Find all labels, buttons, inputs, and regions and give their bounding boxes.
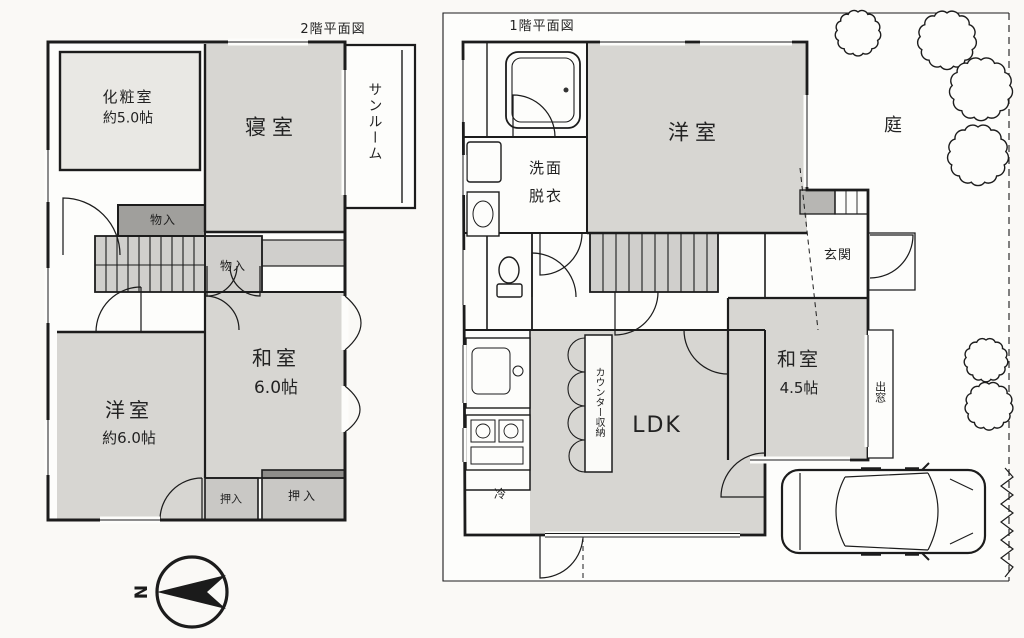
label-garden: 庭	[884, 115, 902, 137]
washer-icon	[467, 142, 501, 182]
bathtub-icon	[506, 52, 580, 128]
label-counter-storage: カウンター収納	[592, 367, 604, 437]
room-label-sunroom: サンルーム	[366, 82, 383, 162]
floor1-plan	[443, 11, 1013, 581]
room-label-ldk: LDK	[632, 413, 682, 439]
room-label-bedroom: 寝室	[245, 115, 299, 140]
kitchen-sink-icon	[466, 338, 530, 408]
room-label-powder-room: 化粧室	[102, 88, 153, 106]
room-size-japanese-room-2f: 6.0帖	[254, 378, 298, 398]
western-room-2f-area	[57, 332, 205, 520]
room-label-closet-small: 押入	[220, 492, 242, 505]
floor2-plan: N	[45, 39, 416, 628]
compass-north-label: N	[132, 585, 152, 599]
room-size-western-room-2f: 約6.0帖	[102, 429, 156, 447]
tree-icon	[964, 339, 1008, 382]
room-label-storage-upper: 物入	[150, 213, 176, 227]
floorplan-drawing: N	[0, 0, 1024, 638]
room-label-washroom-1: 洗面	[529, 159, 563, 177]
room-label-entrance: 玄関	[824, 248, 852, 264]
label-refrigerator: 冷	[494, 487, 506, 501]
stove-icon	[466, 415, 530, 470]
floor2-title: 2階平面図	[300, 22, 365, 38]
floor1-title: 1階平面図	[509, 19, 574, 35]
floorplan-page: N	[0, 0, 1024, 638]
vanity-sink-icon	[467, 192, 499, 236]
room-size-japanese-room-1f: 4.5帖	[780, 379, 819, 397]
room-label-closet-large: 押入	[288, 489, 318, 503]
car-icon	[782, 463, 985, 560]
room-label-japanese-room-1f: 和室	[777, 349, 821, 372]
room-label-japanese-room-2f: 和室	[252, 346, 300, 370]
room-label-storage-lower: 物入	[220, 259, 246, 273]
room-size-powder-room: 約5.0帖	[103, 111, 153, 128]
room-label-western-room-1f: 洋室	[668, 120, 722, 145]
label-bay-window: 出窓	[873, 381, 886, 403]
compass-icon: N	[132, 557, 227, 627]
room-label-washroom-2: 脱衣	[529, 187, 563, 205]
room-label-western-room-2f: 洋室	[105, 398, 153, 422]
